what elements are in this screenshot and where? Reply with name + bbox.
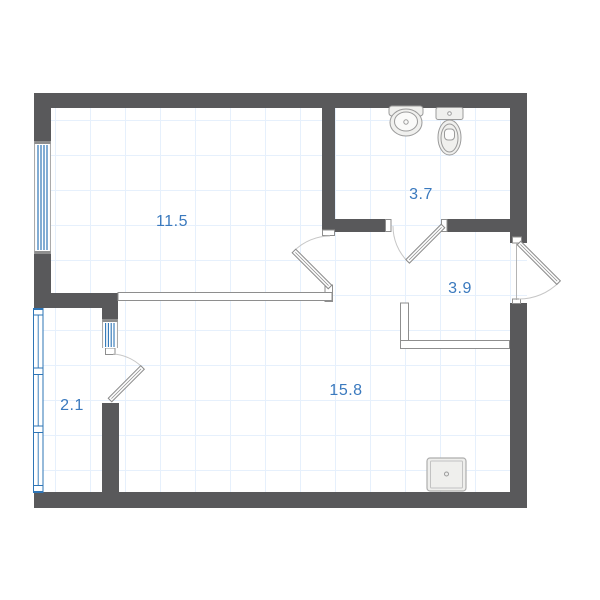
- wall-balcony-stub: [102, 293, 118, 321]
- room-area-label-bathroom: 3.7: [381, 185, 461, 205]
- floor-plan: 11.5 3.7 3.9 2.1 15.8: [0, 0, 600, 600]
- glazing-mullion: [34, 310, 44, 316]
- door-living-swing-arc: [294, 236, 330, 251]
- wall-balcony-lower: [102, 403, 119, 492]
- glazing-mullion: [34, 486, 44, 492]
- room-area-label-balcony: 2.1: [32, 396, 112, 416]
- jamb-living-top: [323, 230, 335, 236]
- door-balcony-leaf: [108, 366, 144, 402]
- wall-left-upper: [34, 108, 51, 141]
- door-bathroom-leaf: [406, 224, 445, 263]
- glazing-mullion: [34, 426, 44, 433]
- room-area-label-hallway: 3.9: [420, 279, 500, 299]
- entrance-door-swing-arc: [519, 283, 559, 299]
- wall-bathroom-right-seg: [441, 219, 510, 232]
- wall-right-upper: [510, 108, 527, 243]
- door-bathroom-swing-arc: [393, 226, 408, 261]
- room-area-label-living: 11.5: [132, 212, 212, 232]
- partitions: [118, 293, 510, 349]
- toilet-fixture: [436, 108, 463, 156]
- glazing-mullion: [34, 368, 44, 375]
- entrance-door-leaf: [517, 241, 560, 284]
- partition-hallway-horizontal: [401, 341, 510, 349]
- window-living: [34, 141, 51, 254]
- wall-right-lower: [510, 303, 527, 492]
- jamb-bathroom-left: [386, 220, 392, 232]
- jamb-balcony-door: [106, 348, 116, 355]
- partition-living-bottom: [118, 293, 332, 301]
- wall-top: [34, 93, 527, 108]
- floor-drain-fixture: [427, 458, 466, 491]
- floor-plan-drawing: [0, 0, 600, 600]
- door-balcony-swing-arc: [113, 354, 143, 368]
- toilet-flush-button: [448, 112, 452, 116]
- wall-living-bathroom: [322, 108, 335, 230]
- room-area-label-kitchen-living: 15.8: [306, 381, 386, 401]
- sink-fixture: [389, 106, 423, 136]
- wall-bottom: [34, 492, 527, 508]
- door-living-leaf: [292, 249, 332, 289]
- window-balcony-block: [102, 319, 118, 348]
